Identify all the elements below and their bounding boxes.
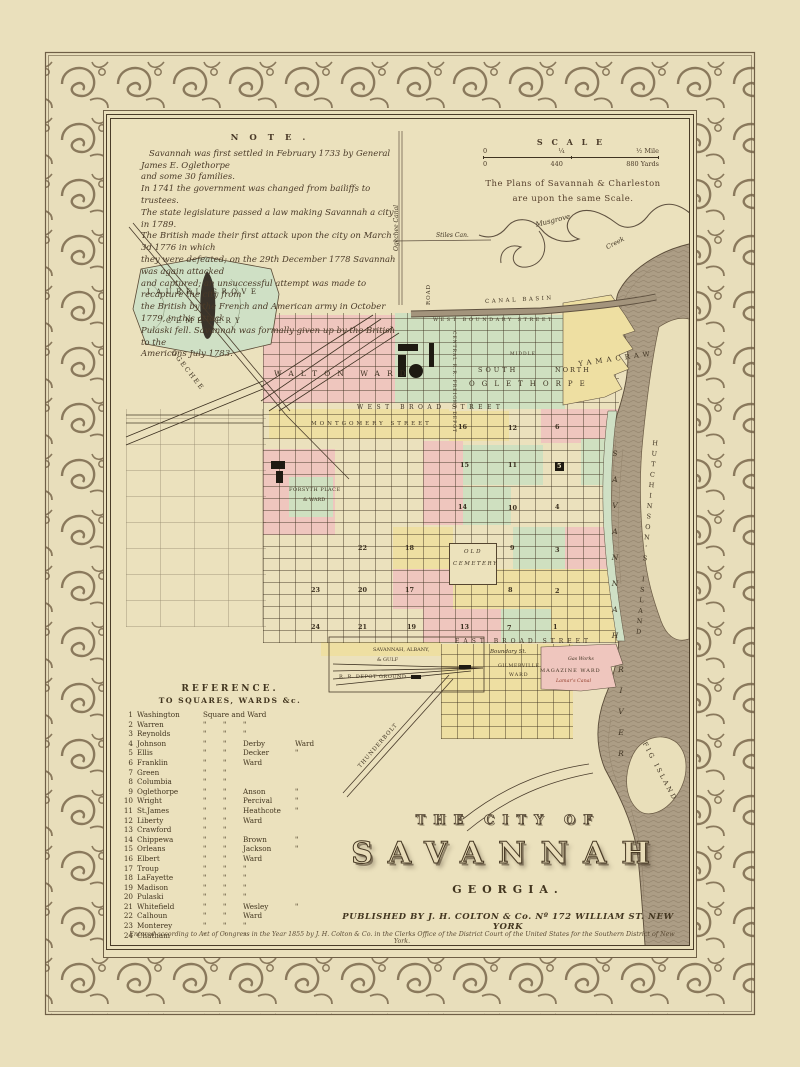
note-line: Pulaski fell. Savannah was formally give… [141, 326, 399, 350]
reference-heading: REFERENCE. [123, 684, 337, 694]
map-label-magazine-ward: MAGAZINE WARD [540, 669, 601, 674]
reference-row: 17Troup""" [123, 864, 337, 874]
reference-row: 11St.James""Heathcote" [123, 806, 337, 816]
map-label-gilmerville-2: WARD [509, 674, 529, 679]
reference-row: 6Franklin""Ward [123, 758, 337, 768]
map-label-south-oglethorpe-2: OGLETHORPE [469, 381, 592, 388]
map-label-road-vertical: ROAD [427, 284, 433, 305]
reference-subheading: TO SQUARES, WARDS &c. [123, 696, 337, 705]
square-chip-8: 8 [508, 587, 513, 594]
stiles-canal-line [393, 240, 491, 241]
title-line-3: GEORGIA. [341, 883, 675, 896]
reference-row: 5Ellis""Decker" [123, 748, 337, 758]
map-label-west-boundary-street: WEST BOUNDARY STREET [433, 318, 554, 323]
reference-row: 13Crawford"" [123, 825, 337, 835]
plans-caption: The Plans of Savannah & Charleston are u… [463, 177, 683, 207]
square-chip-1: 1 [553, 624, 558, 631]
scale-bar [483, 156, 659, 159]
square-chip-20: 20 [358, 587, 367, 594]
note-heading: N O T E . [141, 133, 399, 145]
square-chip-24: 24 [311, 624, 320, 631]
scale-title: S C A L E [483, 137, 659, 147]
map-label-savannah-river-1: SAVANNAH [611, 449, 619, 657]
reference-row: 14Chippewa""Brown" [123, 835, 337, 845]
square-chip-10: 10 [508, 505, 517, 512]
map-label-sagrr-2: & GULF [377, 658, 398, 663]
square-chip-11: 11 [508, 462, 517, 469]
map-label-walton-ward: WALTON WARD [274, 370, 413, 378]
square-chip-14: 14 [458, 504, 467, 511]
square-chip-9: 9 [510, 545, 515, 552]
reference-row: 10Wright""Percival" [123, 796, 337, 806]
square-chip-23: 23 [311, 587, 320, 594]
reference-row: 8Columbia"" [123, 777, 337, 787]
reference-row: 22Calhoun""Ward [123, 911, 337, 921]
map-label-stiles-canal: Stiles Can. [436, 233, 469, 239]
title-block: THE CITY OF SAVANNAH GEORGIA. PUBLISHED … [341, 813, 675, 932]
map-label-sagrr-3: R. R. DEPOT GROUND [339, 675, 406, 680]
copyright-line: Entered according to Act of Congress in … [129, 931, 675, 945]
square-chip-6: 6 [555, 424, 560, 431]
map-label-south-oglethorpe-1: SOUTH [478, 367, 518, 374]
map-label-laurel-grove-1: LAUREL GROVE [147, 289, 261, 296]
map-label-gas-works: Gas Works [568, 658, 594, 663]
map-label-north-oglethorpe: NORTH [555, 367, 591, 374]
reference-row: 1WashingtonSquare and Ward [123, 710, 337, 720]
square-chip-19: 19 [407, 624, 416, 631]
map-label-gilmerville-1: GILMERVILLE [498, 665, 540, 670]
reference-block: REFERENCE. TO SQUARES, WARDS &c. 1Washin… [123, 684, 337, 940]
reference-row: 7Green"" [123, 768, 337, 778]
map-label-forsyth-2: & WARD [303, 498, 325, 503]
map-label-sagrr-1: SAVANNAH, ALBANY, [373, 648, 429, 653]
map-label-middle-ward: MIDDLE [510, 353, 536, 358]
reference-row: 15Orleans""Jackson" [123, 844, 337, 854]
reference-row: 20Pulaski""" [123, 892, 337, 902]
map-label-montgomery-street: MONTGOMERY STREET [311, 422, 432, 428]
reference-row: 19Madison""" [123, 883, 337, 893]
square-chip-17: 17 [405, 587, 414, 594]
map-label-forsyth-1: FORSYTH PLACE [289, 488, 341, 493]
reference-row: 18LaFayette""" [123, 873, 337, 883]
reference-row: 23Monterey""" [123, 921, 337, 931]
reference-row: 3Reynolds""" [123, 729, 337, 739]
note-line: they were defeated; on the 29th December… [141, 255, 399, 279]
title-line-1: THE CITY OF [341, 813, 675, 828]
map-label-old-cemetery-1: OLD [464, 550, 483, 556]
map-label-central-rr-depot: CENTRAL R.R. FREIGHT DEPOT [451, 331, 456, 433]
square-chip-5: 5 [555, 462, 564, 471]
reference-row: 21Whitefield""Wesley" [123, 902, 337, 912]
square-chip-22: 22 [358, 545, 367, 552]
square-chip-12: 12 [508, 425, 517, 432]
note-line: and some 30 families. [141, 172, 399, 184]
map-page: N O T E . Savannah was first settled in … [0, 0, 800, 1067]
map-label-old-cemetery-2: CEMETERY [453, 562, 498, 568]
square-chip-15: 15 [460, 462, 469, 469]
publisher-line: PUBLISHED BY J. H. COLTON & Co. Nº 172 W… [341, 912, 675, 932]
note-line: Savannah was first settled in February 1… [141, 149, 399, 173]
reference-row: 2Warren""" [123, 720, 337, 730]
note-line: In 1741 the government was changed from … [141, 184, 399, 208]
square-chip-18: 18 [405, 545, 414, 552]
square-chip-4: 4 [555, 504, 560, 511]
map-neatline-frame: N O T E . Savannah was first settled in … [110, 118, 690, 946]
map-label-savannah-river-2: RIVER [617, 665, 625, 770]
reference-row: 4Johnson""DerbyWard [123, 739, 337, 749]
note-line: The British made their first attack upon… [141, 231, 399, 255]
square-chip-2: 2 [555, 588, 560, 595]
reference-row: 16Elbert""Ward [123, 854, 337, 864]
square-chip-21: 21 [358, 624, 367, 631]
title-line-2: SAVANNAH [341, 836, 675, 871]
map-label-laurel-grove-2: CEMETERY [166, 318, 244, 325]
note-line: The state legislature passed a law makin… [141, 208, 399, 232]
square-chip-3: 3 [555, 547, 560, 554]
map-label-lamars-canal: Lamar's Canal [556, 680, 591, 685]
reference-row: 9Oglethorpe""Anson" [123, 787, 337, 797]
reference-row: 12Liberty""Ward [123, 816, 337, 826]
map-label-ogechee-canal: Ogechee Canal [394, 205, 400, 251]
square-chip-7: 7 [507, 625, 512, 632]
map-label-east-broad-street: EAST BROAD STREET [455, 639, 592, 645]
square-chip-16: 16 [458, 424, 467, 431]
scale-block: S C A L E 0 ¼ ½ Mile 0 440 880 Yards [483, 137, 659, 168]
map-label-boundary-st: Boundary St. [490, 650, 526, 656]
square-chip-13: 13 [460, 624, 469, 631]
map-label-west-broad-street: WEST BROAD STREET [357, 405, 504, 411]
depot-buildings [271, 343, 434, 483]
note-text: Savannah was first settled in February 1… [141, 149, 399, 361]
note-block: N O T E . Savannah was first settled in … [141, 133, 399, 361]
musgrove-creek [479, 204, 689, 241]
